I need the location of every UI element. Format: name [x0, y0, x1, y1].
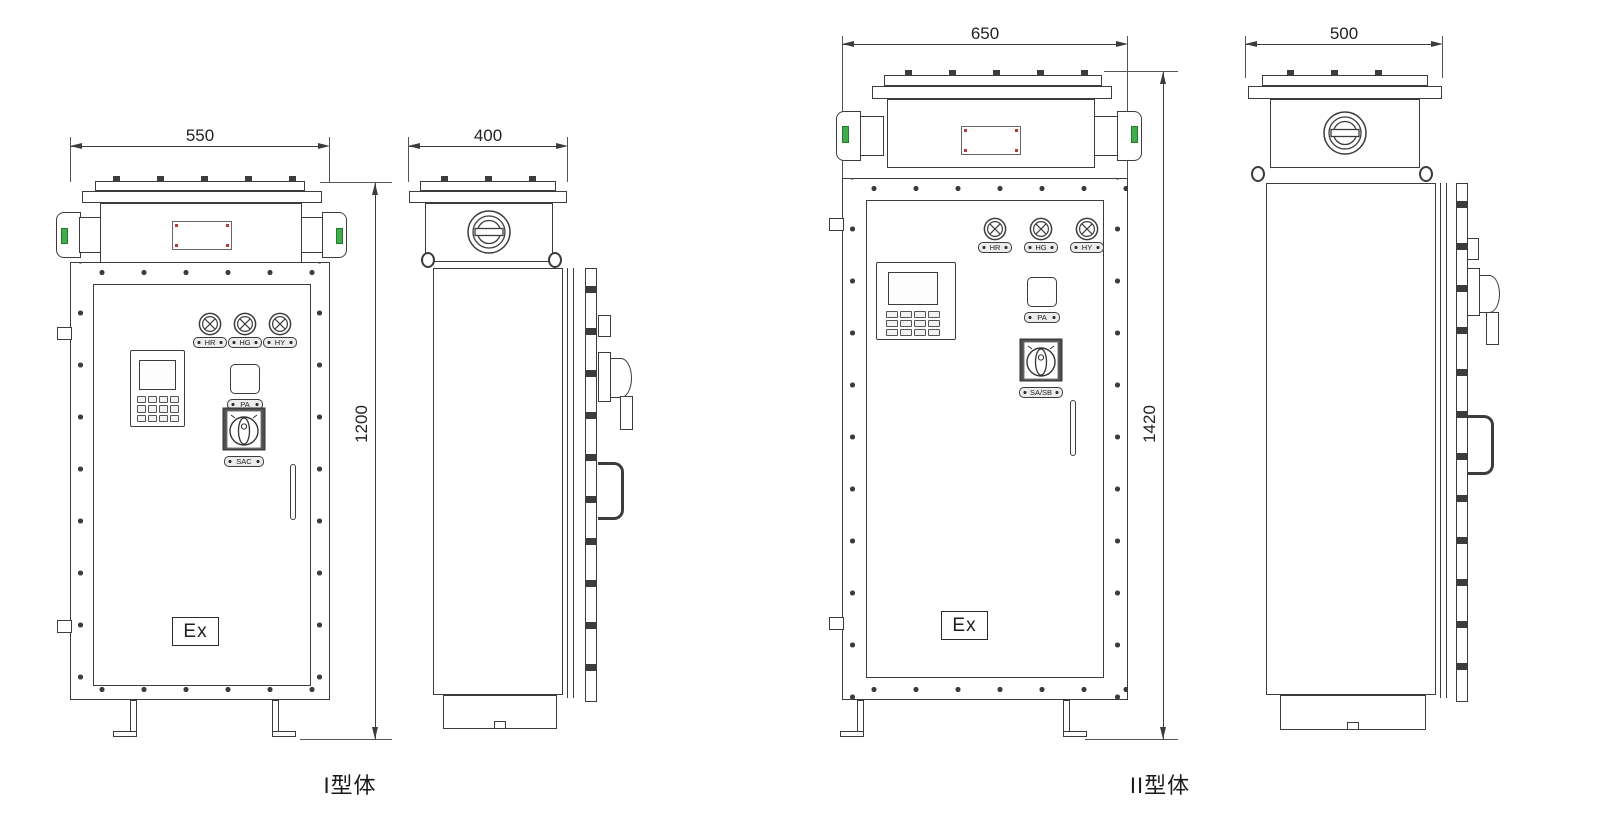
door-edge-line — [1440, 183, 1441, 698]
hinge-block — [1467, 238, 1479, 260]
extension-line — [1442, 36, 1443, 78]
technical-drawing-canvas: 550 HR HG HY — [0, 0, 1616, 834]
type2-side-depth-dimension-label: 500 — [1245, 24, 1443, 44]
type2-side-depth-dimension-line — [1245, 44, 1443, 45]
lid-plate — [1262, 75, 1428, 86]
door-edge-line — [1446, 183, 1447, 698]
lifting-eye — [1251, 166, 1265, 182]
type2-side-view: 500 — [0, 0, 1616, 834]
type2-caption: II型体 — [1090, 768, 1230, 800]
arrow-left-icon — [1245, 41, 1257, 47]
cabinet-side-body — [1266, 183, 1436, 695]
lifting-eye — [1419, 166, 1433, 182]
latch-cam — [1479, 275, 1500, 313]
plinth-notch — [1347, 722, 1359, 730]
blanking-plug-icon — [1322, 110, 1368, 156]
door-handle — [1467, 415, 1494, 475]
extension-line — [1245, 36, 1246, 78]
lid-flange — [1248, 86, 1442, 99]
latch-lever — [1486, 312, 1499, 345]
